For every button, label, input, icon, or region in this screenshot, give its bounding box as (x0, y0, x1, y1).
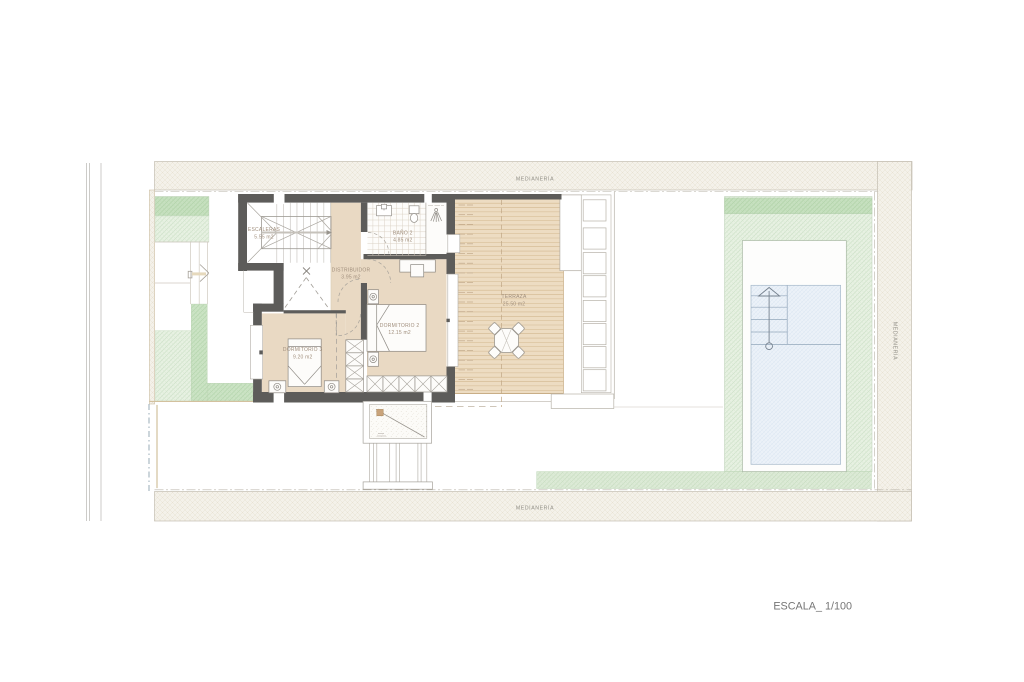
svg-text:DORMITORIO 2: DORMITORIO 2 (380, 323, 420, 329)
svg-text:3.95 m2: 3.95 m2 (341, 275, 360, 281)
svg-text:MEDIANERÍA: MEDIANERÍA (516, 505, 554, 512)
svg-text:ESCALA_ 1/100: ESCALA_ 1/100 (773, 601, 852, 613)
svg-text:12.15 m2: 12.15 m2 (388, 330, 410, 336)
svg-text:ESCALERAS: ESCALERAS (248, 227, 281, 233)
svg-text:BAÑO 2: BAÑO 2 (393, 230, 413, 237)
svg-text:DORMITORIO 3: DORMITORIO 3 (283, 347, 323, 353)
svg-text:25.50 m2: 25.50 m2 (503, 301, 525, 307)
svg-text:MEDIANERÍA: MEDIANERÍA (516, 176, 554, 183)
svg-text:9.20 m2: 9.20 m2 (293, 354, 312, 360)
svg-text:DISTRIBUIDOR: DISTRIBUIDOR (332, 267, 371, 273)
svg-text:TERRAZA: TERRAZA (501, 294, 527, 300)
svg-text:4.85 m2: 4.85 m2 (393, 238, 412, 244)
svg-text:MEDIANERÍA: MEDIANERÍA (892, 322, 899, 360)
svg-text:5.55 m2: 5.55 m2 (254, 234, 273, 240)
